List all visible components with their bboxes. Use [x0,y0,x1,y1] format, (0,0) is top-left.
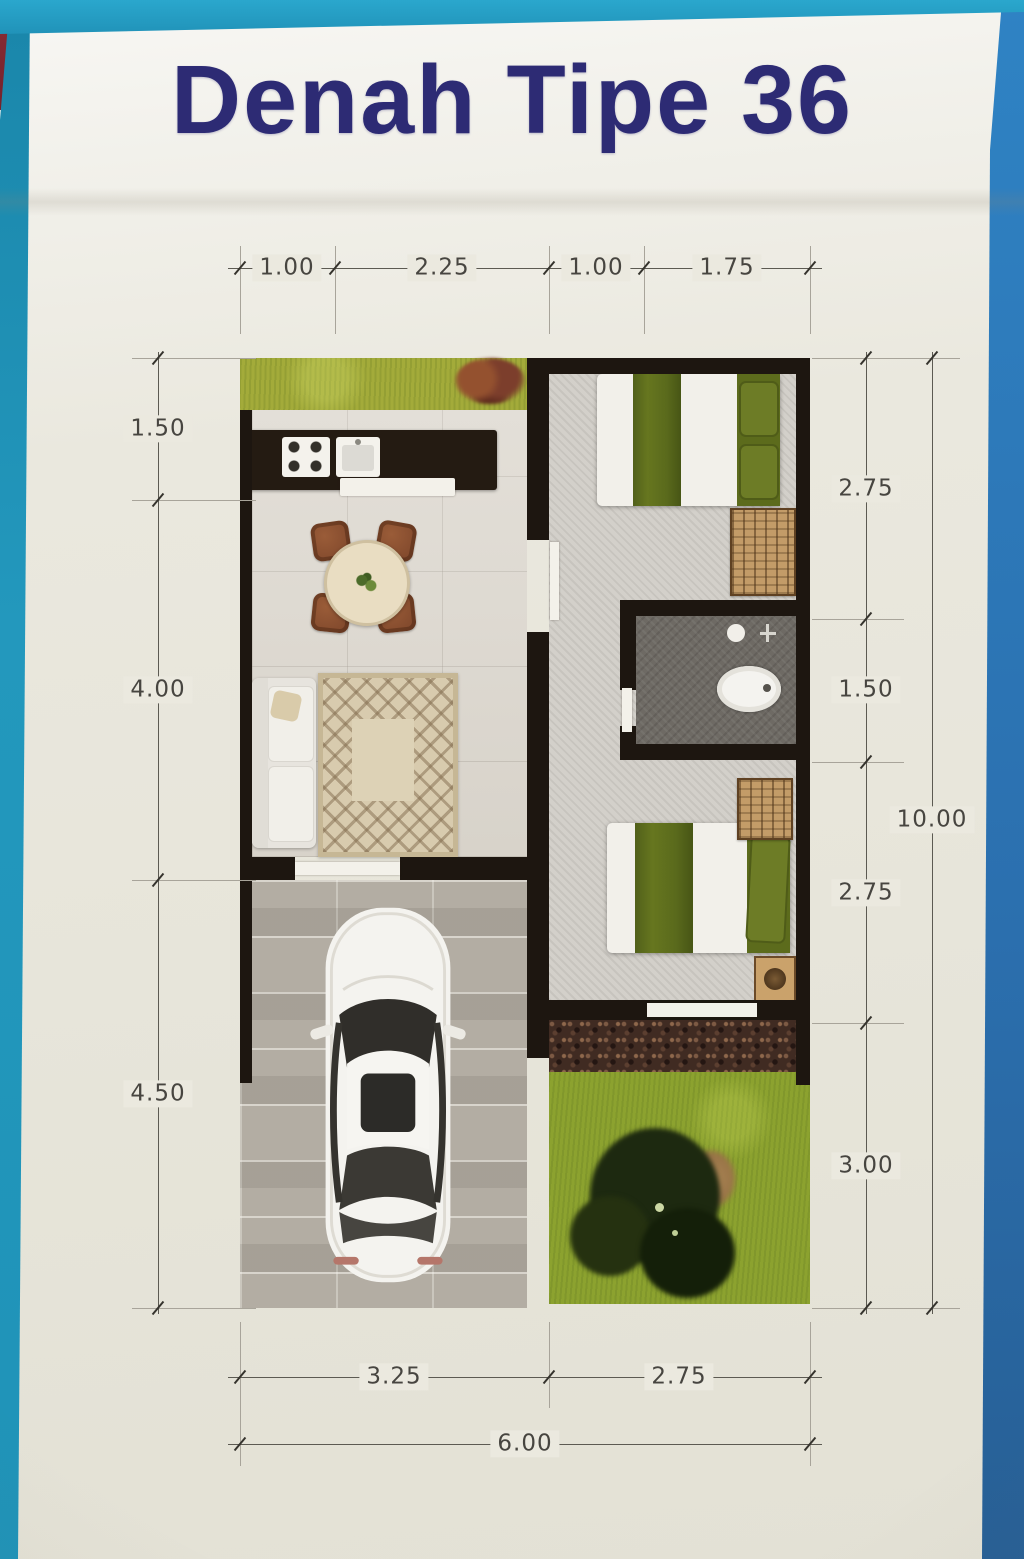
bed-1-blanket [633,374,681,506]
bedside-table [754,956,796,1002]
dim-label: 1.00 [252,254,321,281]
toilet [717,666,781,712]
dim-label: 3.25 [359,1363,428,1390]
wall [527,632,549,1058]
extension-line [644,246,645,334]
tree-canopy [570,1196,650,1276]
bed-2-pillow [745,834,791,944]
brochure-page: Denah Tipe 36 [0,0,1024,1559]
extension-line [812,762,904,763]
tree-highlight [655,1203,664,1212]
front-door [295,862,400,875]
wall [620,616,636,690]
extension-line [132,880,256,881]
bed-1-pillow [739,444,779,500]
garden-bush [455,358,525,404]
wall [527,358,810,374]
bed-1 [597,374,780,506]
extension-line [335,246,336,334]
dim-label: 4.00 [123,676,192,703]
living-rug [318,673,458,857]
bathroom-sink [727,624,745,642]
door-leaf [550,542,559,620]
table-plant [354,570,380,596]
paper-crease [0,188,1024,216]
wall [620,600,796,616]
table-decor [764,968,786,990]
sofa-cushion [268,766,314,842]
dim-label: 3.00 [831,1152,900,1179]
extension-line [132,1308,256,1309]
counter-ledge [340,478,455,496]
extension-line [132,358,256,359]
sofa-pillow [269,689,302,722]
dim-label: 2.75 [644,1363,713,1390]
kitchen-sink [336,437,380,477]
extension-line [812,619,904,620]
extension-line [132,500,256,501]
dim-label: 1.50 [123,415,192,442]
pebble-strip [549,1020,810,1072]
sofa-backrest [252,678,268,848]
bed-2 [607,823,790,953]
dining-table [324,540,410,626]
wall [240,410,252,1083]
extension-line [240,246,241,334]
brochure-edge-left [0,0,34,1559]
dim-label: 2.75 [831,475,900,502]
extension-line [810,246,811,334]
sink-basin [342,445,374,471]
tree-canopy [640,1208,735,1298]
bed-2-blanket [635,823,693,953]
wardrobe-1 [730,508,796,596]
wardrobe-2 [737,778,793,840]
sofa [252,678,316,848]
garden-window [647,1003,757,1017]
wall [400,857,549,880]
extension-line [549,246,550,334]
dim-label: 10.00 [890,806,975,833]
dim-label: 1.50 [831,676,900,703]
floor-plan [240,358,810,1308]
extension-line [812,1023,904,1024]
page-title: Denah Tipe 36 [0,44,1024,156]
bathroom-faucet [766,624,769,642]
wall [527,374,549,540]
wall [796,358,810,1085]
car-top-view [310,900,466,1290]
bathroom-door [622,688,632,732]
brochure-edge-right [982,0,1024,1559]
dim-label: 2.75 [831,879,900,906]
dim-label: 6.00 [490,1430,559,1457]
dim-label: 2.25 [407,254,476,281]
stove [282,437,330,477]
extension-line [549,1322,550,1408]
extension-line [812,1308,960,1309]
rug-center [352,719,414,801]
dim-label: 4.50 [123,1080,192,1107]
dim-label: 1.00 [561,254,630,281]
extension-line [812,358,960,359]
brochure-edge-top [0,0,1024,40]
bed-1-pillow [739,381,779,437]
toilet-flush [763,684,771,692]
tree-highlight [672,1230,678,1236]
dim-label: 1.75 [692,254,761,281]
wall [620,744,796,760]
dimension-line [228,1377,822,1378]
sink-faucet [355,439,361,445]
